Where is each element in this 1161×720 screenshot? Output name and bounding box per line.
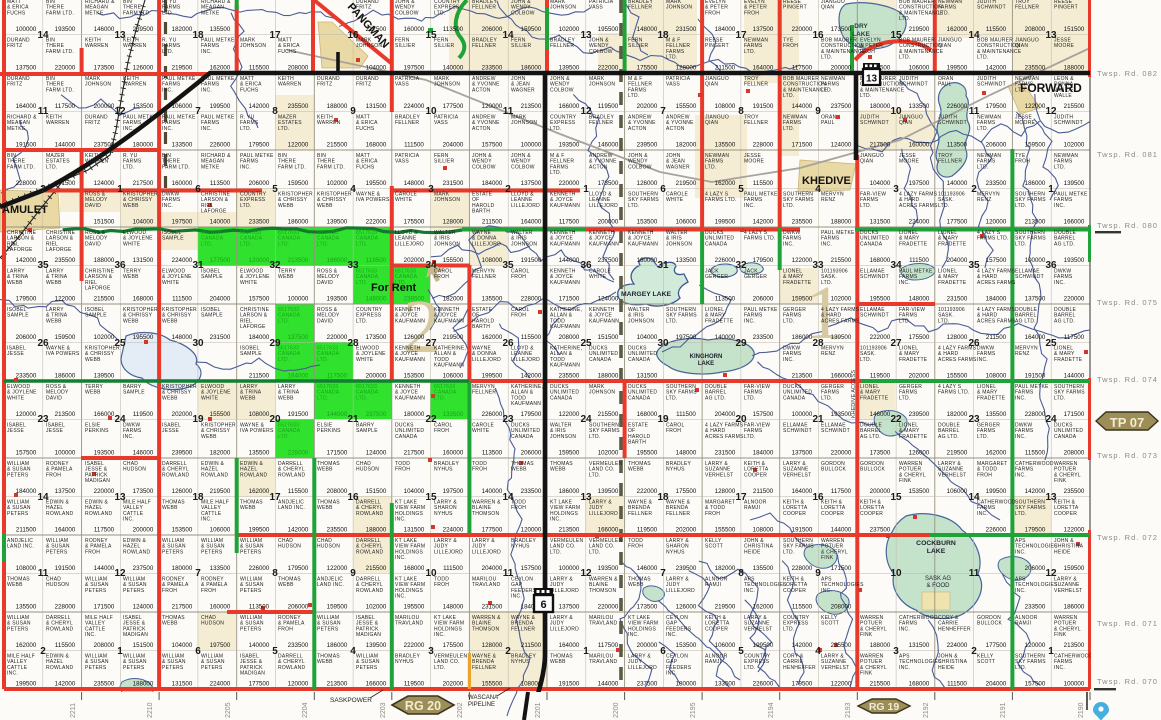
svg-text:193500: 193500 bbox=[598, 565, 619, 572]
svg-text:191500: 191500 bbox=[521, 257, 542, 264]
svg-text:237500: 237500 bbox=[366, 411, 387, 418]
svg-text:115500: 115500 bbox=[288, 488, 309, 495]
svg-text:191500: 191500 bbox=[1025, 373, 1046, 380]
svg-text:188000: 188000 bbox=[598, 373, 619, 380]
svg-text:DOUBLEBARRELAG LTD.: DOUBLEBARRELAG LTD. bbox=[860, 423, 882, 440]
svg-text:ANDJELICLAND INC.: ANDJELICLAND INC. bbox=[278, 500, 305, 512]
svg-text:179500: 179500 bbox=[792, 681, 813, 688]
svg-text:2194: 2194 bbox=[768, 702, 775, 718]
svg-text:100000: 100000 bbox=[1025, 257, 1046, 264]
svg-text:120000: 120000 bbox=[288, 681, 309, 688]
svg-text:CHRISTINELARSON &RIELLAFORGE: CHRISTINELARSON &RIELLAFORGE bbox=[240, 307, 270, 330]
svg-text:204000: 204000 bbox=[947, 257, 968, 264]
svg-text:206000: 206000 bbox=[482, 26, 503, 33]
svg-text:133500: 133500 bbox=[676, 257, 697, 264]
svg-text:217500: 217500 bbox=[404, 450, 425, 457]
svg-text:208000: 208000 bbox=[94, 642, 115, 649]
svg-text:153500: 153500 bbox=[909, 488, 930, 495]
svg-text:126000: 126000 bbox=[172, 488, 193, 495]
svg-text:KEITH &LORETTACOOPER: KEITH &LORETTACOOPER bbox=[783, 500, 808, 517]
svg-text:CHRISTINELARSON &RIELLAFORGE: CHRISTINELARSON &RIELLAFORGE bbox=[201, 192, 231, 215]
svg-text:146000: 146000 bbox=[366, 296, 387, 303]
svg-text:WASCANA: WASCANA bbox=[468, 695, 498, 701]
svg-text:140000: 140000 bbox=[482, 488, 503, 495]
svg-text:135500: 135500 bbox=[482, 296, 503, 303]
svg-text:LAKE: LAKE bbox=[927, 548, 946, 555]
svg-text:211500: 211500 bbox=[715, 65, 736, 72]
svg-text:139500: 139500 bbox=[559, 65, 580, 72]
svg-text:186000: 186000 bbox=[559, 488, 580, 495]
svg-text:TODDFROH: TODDFROH bbox=[511, 500, 526, 512]
svg-text:ELLAMAESCHWINDT: ELLAMAESCHWINDT bbox=[860, 307, 889, 319]
svg-text:215500: 215500 bbox=[94, 296, 115, 303]
svg-text:DOUBLEBARRELAG LTD.: DOUBLEBARRELAG LTD. bbox=[1015, 307, 1037, 324]
svg-text:144000: 144000 bbox=[559, 257, 580, 264]
svg-text:ISABELJESSE: ISABELJESSE bbox=[162, 423, 181, 435]
svg-text:233500: 233500 bbox=[1025, 604, 1046, 611]
svg-text:119500: 119500 bbox=[870, 373, 891, 380]
svg-text:104000: 104000 bbox=[404, 488, 425, 495]
svg-text:LAKE: LAKE bbox=[852, 31, 870, 38]
svg-text:151500: 151500 bbox=[598, 334, 619, 341]
svg-text:ANDJELICLAND INC.: ANDJELICLAND INC. bbox=[7, 538, 34, 550]
svg-text:180000: 180000 bbox=[404, 411, 425, 418]
svg-text:126000: 126000 bbox=[676, 604, 697, 611]
svg-text:131500: 131500 bbox=[366, 103, 387, 110]
svg-text:119500: 119500 bbox=[366, 257, 387, 264]
svg-text:ISABELJESSE: ISABELJESSE bbox=[7, 346, 26, 358]
svg-text:228000: 228000 bbox=[288, 450, 309, 457]
svg-text:175500: 175500 bbox=[404, 219, 425, 226]
svg-text:108000: 108000 bbox=[715, 103, 736, 110]
svg-text:159500: 159500 bbox=[1064, 565, 1085, 572]
svg-text:131500: 131500 bbox=[870, 219, 891, 226]
svg-text:137500: 137500 bbox=[288, 334, 309, 341]
svg-text:113500: 113500 bbox=[443, 26, 464, 33]
svg-text:179500: 179500 bbox=[521, 411, 542, 418]
svg-text:DARRELL& CHERYLROWLAND: DARRELL& CHERYLROWLAND bbox=[278, 654, 305, 671]
svg-text:140000: 140000 bbox=[947, 180, 968, 187]
svg-text:186000: 186000 bbox=[1064, 604, 1085, 611]
svg-text:235500: 235500 bbox=[559, 373, 580, 380]
svg-text:KELLYSCOTT: KELLYSCOTT bbox=[821, 615, 839, 627]
svg-text:171500: 171500 bbox=[327, 450, 348, 457]
svg-text:168000: 168000 bbox=[637, 411, 658, 418]
svg-text:224000: 224000 bbox=[909, 219, 930, 226]
svg-text:202000: 202000 bbox=[443, 681, 464, 688]
svg-text:RG 20: RG 20 bbox=[405, 699, 441, 713]
svg-text:WAYNE &BRENDAFELLNER: WAYNE &BRENDAFELLNER bbox=[472, 654, 497, 671]
svg-text:104000: 104000 bbox=[133, 219, 154, 226]
svg-text:CHRISTINELARSON &RIELLAFORGE: CHRISTINELARSON &RIELLAFORGE bbox=[7, 230, 37, 253]
svg-text:184000: 184000 bbox=[249, 334, 270, 341]
svg-text:226000: 226000 bbox=[482, 411, 503, 418]
svg-text:RG 19: RG 19 bbox=[869, 701, 900, 713]
svg-text:213500: 213500 bbox=[559, 527, 580, 534]
svg-text:213500: 213500 bbox=[1064, 642, 1085, 649]
svg-text:220000: 220000 bbox=[792, 26, 813, 33]
svg-text:166000: 166000 bbox=[366, 681, 387, 688]
svg-text:157500: 157500 bbox=[482, 142, 503, 149]
svg-text:131500: 131500 bbox=[404, 527, 425, 534]
svg-text:235500: 235500 bbox=[288, 103, 309, 110]
svg-text:157500: 157500 bbox=[986, 257, 1007, 264]
svg-text:195500: 195500 bbox=[598, 26, 619, 33]
svg-text:CHRISTINELARSON &RIELLAFORGE: CHRISTINELARSON &RIELLAFORGE bbox=[85, 269, 115, 292]
svg-text:Twsp. Rd. 071: Twsp. Rd. 071 bbox=[1097, 619, 1158, 628]
svg-text:142000: 142000 bbox=[792, 642, 813, 649]
svg-text:200000: 200000 bbox=[94, 103, 115, 110]
svg-text:WILLIAM& SUSANPETERS: WILLIAM& SUSANPETERS bbox=[317, 615, 341, 632]
svg-text:186000: 186000 bbox=[55, 373, 76, 380]
svg-text:155500: 155500 bbox=[715, 527, 736, 534]
svg-text:195500: 195500 bbox=[637, 450, 658, 457]
svg-text:113500: 113500 bbox=[249, 604, 270, 611]
svg-text:160000: 160000 bbox=[210, 604, 231, 611]
svg-text:171500: 171500 bbox=[559, 296, 580, 303]
svg-text:KINGHORN: KINGHORN bbox=[690, 354, 723, 360]
svg-text:WILLIAM& SUSANPETERS: WILLIAM& SUSANPETERS bbox=[162, 654, 186, 671]
svg-text:30: 30 bbox=[657, 338, 669, 349]
svg-text:179500: 179500 bbox=[1025, 527, 1046, 534]
svg-text:160000: 160000 bbox=[172, 180, 193, 187]
svg-text:188000: 188000 bbox=[831, 219, 852, 226]
svg-text:DARRELL& CHERYLROWLAND: DARRELL& CHERYLROWLAND bbox=[162, 461, 189, 478]
svg-text:164000: 164000 bbox=[559, 642, 580, 649]
svg-text:100000: 100000 bbox=[792, 411, 813, 418]
svg-text:186000: 186000 bbox=[521, 65, 542, 72]
svg-text:199500: 199500 bbox=[715, 219, 736, 226]
svg-text:211500: 211500 bbox=[986, 334, 1007, 341]
svg-text:KEITH &LORETTACOOPER: KEITH &LORETTACOOPER bbox=[783, 577, 808, 594]
svg-text:122000: 122000 bbox=[1064, 527, 1085, 534]
svg-text:137500: 137500 bbox=[55, 488, 76, 495]
svg-text:202000: 202000 bbox=[637, 103, 658, 110]
svg-text:213500: 213500 bbox=[521, 103, 542, 110]
svg-text:140000: 140000 bbox=[715, 334, 736, 341]
svg-text:135500: 135500 bbox=[210, 26, 231, 33]
svg-text:217500: 217500 bbox=[870, 142, 891, 149]
svg-text:173500: 173500 bbox=[637, 604, 658, 611]
svg-text:204000: 204000 bbox=[986, 681, 1007, 688]
svg-text:WILLIAM& SUSANPETERS: WILLIAM& SUSANPETERS bbox=[7, 461, 31, 478]
svg-text:128000: 128000 bbox=[715, 488, 736, 495]
svg-text:29: 29 bbox=[735, 338, 747, 349]
svg-text:162000: 162000 bbox=[210, 65, 231, 72]
svg-text:186000: 186000 bbox=[1025, 180, 1046, 187]
svg-text:200000: 200000 bbox=[637, 642, 658, 649]
svg-text:MARILOUTRAVLAND: MARILOUTRAVLAND bbox=[472, 577, 500, 589]
svg-text:WILLIAM& SUSANPETERS: WILLIAM& SUSANPETERS bbox=[201, 538, 225, 555]
svg-text:137500: 137500 bbox=[521, 180, 542, 187]
svg-text:186000: 186000 bbox=[288, 219, 309, 226]
svg-text:131500: 131500 bbox=[637, 373, 658, 380]
svg-text:202000: 202000 bbox=[909, 373, 930, 380]
svg-text:MARILOUTRAVLAND: MARILOUTRAVLAND bbox=[395, 615, 423, 627]
svg-text:162000: 162000 bbox=[715, 180, 736, 187]
svg-text:166000: 166000 bbox=[831, 373, 852, 380]
svg-text:237500: 237500 bbox=[598, 257, 619, 264]
svg-text:KELLYSCOTT: KELLYSCOTT bbox=[705, 538, 723, 550]
svg-text:191500: 191500 bbox=[16, 142, 37, 149]
svg-text:220000: 220000 bbox=[1064, 296, 1085, 303]
svg-text:235500: 235500 bbox=[1025, 65, 1046, 72]
svg-text:146000: 146000 bbox=[94, 26, 115, 33]
svg-text:153500: 153500 bbox=[172, 527, 193, 534]
svg-text:BRADLEYFELLNER: BRADLEYFELLNER bbox=[395, 115, 421, 127]
svg-text:199500: 199500 bbox=[482, 373, 503, 380]
svg-text:148000: 148000 bbox=[404, 180, 425, 187]
svg-text:120000: 120000 bbox=[16, 411, 37, 418]
svg-text:10: 10 bbox=[890, 568, 902, 579]
svg-text:CHRISTINELARSON &RIELLAFORGE: CHRISTINELARSON &RIELLAFORGE bbox=[46, 230, 76, 253]
svg-text:115500: 115500 bbox=[249, 65, 270, 72]
svg-text:102000: 102000 bbox=[559, 26, 580, 33]
svg-text:144000: 144000 bbox=[1064, 373, 1085, 380]
svg-text:TP 07: TP 07 bbox=[1110, 415, 1144, 430]
svg-text:206000: 206000 bbox=[249, 180, 270, 187]
svg-text:142000: 142000 bbox=[16, 257, 37, 264]
svg-text:159500: 159500 bbox=[792, 296, 813, 303]
svg-text:DARRELL& CHERYLROWLAND: DARRELL& CHERYLROWLAND bbox=[356, 577, 383, 594]
svg-text:122000: 122000 bbox=[327, 565, 348, 572]
svg-text:115500: 115500 bbox=[792, 604, 813, 611]
svg-text:193500: 193500 bbox=[94, 450, 115, 457]
svg-text:119500: 119500 bbox=[133, 411, 154, 418]
svg-text:219500: 219500 bbox=[947, 450, 968, 457]
svg-text:KEITH &LORETTACOOPER: KEITH &LORETTACOOPER bbox=[744, 461, 769, 478]
svg-text:120000: 120000 bbox=[1025, 642, 1046, 649]
svg-text:197500: 197500 bbox=[404, 65, 425, 72]
svg-text:ISABELJESSE: ISABELJESSE bbox=[46, 423, 65, 435]
svg-text:222000: 222000 bbox=[366, 219, 387, 226]
svg-text:DARRELL& CHERYLROWLAND: DARRELL& CHERYLROWLAND bbox=[356, 538, 383, 555]
svg-text:WILLIAM& SUSANPETERS: WILLIAM& SUSANPETERS bbox=[123, 577, 147, 594]
svg-text:193500: 193500 bbox=[831, 411, 852, 418]
svg-text:235500: 235500 bbox=[55, 257, 76, 264]
svg-text:228000: 228000 bbox=[753, 142, 774, 149]
svg-text:199500: 199500 bbox=[210, 103, 231, 110]
svg-text:239500: 239500 bbox=[404, 296, 425, 303]
svg-text:137500: 137500 bbox=[559, 604, 580, 611]
svg-text:139500: 139500 bbox=[1064, 180, 1085, 187]
svg-text:224000: 224000 bbox=[404, 103, 425, 110]
svg-text:219500: 219500 bbox=[172, 65, 193, 72]
svg-text:231500: 231500 bbox=[443, 180, 464, 187]
svg-text:AMULET: AMULET bbox=[2, 204, 48, 216]
svg-text:146000: 146000 bbox=[637, 565, 658, 572]
svg-text:237500: 237500 bbox=[94, 142, 115, 149]
svg-text:188000: 188000 bbox=[870, 642, 891, 649]
svg-text:199500: 199500 bbox=[986, 488, 1007, 495]
svg-text:144000: 144000 bbox=[831, 527, 852, 534]
svg-text:2200: 2200 bbox=[613, 702, 620, 718]
svg-text:137500: 137500 bbox=[16, 65, 37, 72]
svg-text:200000: 200000 bbox=[366, 373, 387, 380]
svg-text:153500: 153500 bbox=[676, 642, 697, 649]
svg-text:159500: 159500 bbox=[327, 604, 348, 611]
svg-text:217500: 217500 bbox=[172, 604, 193, 611]
svg-text:202000: 202000 bbox=[172, 411, 193, 418]
svg-text:GORDONBULLOCK: GORDONBULLOCK bbox=[821, 461, 847, 473]
svg-text:WAYNE &BRENDAFELLNER: WAYNE &BRENDAFELLNER bbox=[628, 500, 653, 517]
svg-text:166000: 166000 bbox=[559, 103, 580, 110]
svg-text:228000: 228000 bbox=[521, 296, 542, 303]
svg-text:BRADLEYFELLNER: BRADLEYFELLNER bbox=[472, 0, 498, 11]
svg-text:100000: 100000 bbox=[288, 296, 309, 303]
svg-text:219500: 219500 bbox=[909, 26, 930, 33]
svg-text:155500: 155500 bbox=[210, 411, 231, 418]
svg-text:102000: 102000 bbox=[366, 604, 387, 611]
svg-text:ORANPAUL: ORANPAUL bbox=[821, 115, 837, 127]
svg-text:237500: 237500 bbox=[870, 527, 891, 534]
svg-text:WAYNE &BRENDAFELLNER: WAYNE &BRENDAFELLNER bbox=[511, 615, 536, 632]
svg-text:179500: 179500 bbox=[753, 257, 774, 264]
svg-text:KELLYSCOTT: KELLYSCOTT bbox=[977, 654, 995, 666]
svg-text:ELLAMAESCHWINDT: ELLAMAESCHWINDT bbox=[1015, 269, 1044, 281]
svg-text:148000: 148000 bbox=[172, 334, 193, 341]
svg-text:157500: 157500 bbox=[16, 450, 37, 457]
svg-text:139500: 139500 bbox=[831, 334, 852, 341]
svg-text:206000: 206000 bbox=[986, 142, 1007, 149]
svg-text:179500: 179500 bbox=[16, 296, 37, 303]
svg-text:WILLIAM& SUSANPETERS: WILLIAM& SUSANPETERS bbox=[201, 654, 225, 671]
svg-text:155500: 155500 bbox=[676, 103, 697, 110]
svg-text:224000: 224000 bbox=[172, 257, 193, 264]
svg-text:108000: 108000 bbox=[482, 257, 503, 264]
svg-text:151500: 151500 bbox=[1064, 26, 1085, 33]
svg-text:202000: 202000 bbox=[676, 527, 697, 534]
svg-text:117500: 117500 bbox=[559, 219, 580, 226]
svg-text:220000: 220000 bbox=[559, 180, 580, 187]
svg-text:135500: 135500 bbox=[753, 565, 774, 572]
svg-text:137500: 137500 bbox=[753, 26, 774, 33]
svg-text:188000: 188000 bbox=[327, 103, 348, 110]
svg-text:102000: 102000 bbox=[598, 450, 619, 457]
svg-text:102000: 102000 bbox=[831, 296, 852, 303]
svg-text:124000: 124000 bbox=[133, 604, 154, 611]
svg-text:168000: 168000 bbox=[366, 142, 387, 149]
svg-text:182000: 182000 bbox=[210, 450, 231, 457]
svg-text:151500: 151500 bbox=[133, 642, 154, 649]
svg-text:160000: 160000 bbox=[909, 142, 930, 149]
svg-text:WILLIAM& SUSANPETERS: WILLIAM& SUSANPETERS bbox=[240, 538, 264, 555]
svg-text:208000: 208000 bbox=[559, 334, 580, 341]
svg-text:180000: 180000 bbox=[133, 142, 154, 149]
svg-text:222000: 222000 bbox=[404, 642, 425, 649]
svg-text:171500: 171500 bbox=[1064, 411, 1085, 418]
svg-text:211500: 211500 bbox=[16, 527, 37, 534]
svg-text:124000: 124000 bbox=[831, 142, 852, 149]
svg-text:104000: 104000 bbox=[870, 180, 891, 187]
svg-text:142000: 142000 bbox=[986, 65, 1007, 72]
svg-text:ELLAMAESCHWINDT: ELLAMAESCHWINDT bbox=[821, 423, 850, 435]
svg-text:164000: 164000 bbox=[16, 103, 37, 110]
svg-text:211500: 211500 bbox=[753, 488, 774, 495]
svg-text:215500: 215500 bbox=[870, 681, 891, 688]
svg-text:226000: 226000 bbox=[753, 681, 774, 688]
svg-text:SASKPOWER: SASKPOWER bbox=[330, 697, 372, 704]
svg-text:162000: 162000 bbox=[986, 450, 1007, 457]
svg-text:WILLIAM& SUSANPETERS: WILLIAM& SUSANPETERS bbox=[46, 538, 70, 555]
svg-text:108000: 108000 bbox=[249, 411, 270, 418]
svg-text:122000: 122000 bbox=[792, 257, 813, 264]
svg-text:188000: 188000 bbox=[1064, 65, 1085, 72]
svg-text:131500: 131500 bbox=[172, 681, 193, 688]
svg-text:WILLIAM& SUSANPETERS: WILLIAM& SUSANPETERS bbox=[240, 615, 264, 632]
svg-text:159500: 159500 bbox=[559, 450, 580, 457]
svg-text:162000: 162000 bbox=[947, 26, 968, 33]
svg-text:206000: 206000 bbox=[521, 450, 542, 457]
svg-text:235500: 235500 bbox=[1064, 488, 1085, 495]
svg-text:231500: 231500 bbox=[482, 604, 503, 611]
svg-text:DARRELL& CHERYLROWLAND: DARRELL& CHERYLROWLAND bbox=[278, 461, 305, 478]
svg-text:ISOBELSAMPLE: ISOBELSAMPLE bbox=[7, 307, 29, 319]
svg-text:Twsp. Rd. 070: Twsp. Rd. 070 bbox=[1097, 677, 1158, 686]
svg-text:206000: 206000 bbox=[16, 334, 37, 341]
svg-text:148000: 148000 bbox=[443, 604, 464, 611]
svg-text:KEITH &LORETTACOOPER: KEITH &LORETTACOOPER bbox=[1054, 500, 1079, 517]
svg-text:WAYNE &BRENDAFELLNER: WAYNE &BRENDAFELLNER bbox=[666, 500, 691, 517]
svg-text:148000: 148000 bbox=[637, 26, 658, 33]
svg-text:113500: 113500 bbox=[947, 142, 968, 149]
svg-text:135500: 135500 bbox=[986, 411, 1007, 418]
svg-text:GORDONBULLOCK: GORDONBULLOCK bbox=[977, 615, 1003, 627]
svg-text:TODDFROH: TODDFROH bbox=[395, 461, 410, 473]
svg-text:177500: 177500 bbox=[986, 642, 1007, 649]
svg-text:237500: 237500 bbox=[133, 565, 154, 572]
svg-text:171500: 171500 bbox=[831, 565, 852, 572]
svg-text:KHEDIVE ACCESS: KHEDIVE ACCESS bbox=[851, 370, 857, 418]
svg-text:173500: 173500 bbox=[366, 334, 387, 341]
svg-text:200000: 200000 bbox=[133, 527, 154, 534]
svg-text:WILLIAM& SUSANPETERS: WILLIAM& SUSANPETERS bbox=[7, 500, 31, 517]
svg-text:11: 11 bbox=[969, 568, 980, 579]
svg-text:2192: 2192 bbox=[923, 702, 930, 718]
svg-text:142000: 142000 bbox=[288, 527, 309, 534]
svg-text:142000: 142000 bbox=[249, 103, 270, 110]
svg-text:164000: 164000 bbox=[55, 527, 76, 534]
svg-text:191500: 191500 bbox=[559, 681, 580, 688]
svg-text:113500: 113500 bbox=[482, 450, 503, 457]
svg-text:226000: 226000 bbox=[249, 565, 270, 572]
svg-text:219500: 219500 bbox=[715, 604, 736, 611]
svg-text:ISOBELSAMPLE: ISOBELSAMPLE bbox=[201, 307, 223, 319]
svg-text:100000: 100000 bbox=[1064, 681, 1085, 688]
svg-text:199500: 199500 bbox=[753, 642, 774, 649]
svg-text:2193: 2193 bbox=[845, 702, 852, 718]
svg-text:111500: 111500 bbox=[947, 681, 967, 688]
svg-text:ISOBELSAMPLE: ISOBELSAMPLE bbox=[162, 230, 184, 242]
svg-text:142000: 142000 bbox=[521, 373, 542, 380]
svg-text:184000: 184000 bbox=[16, 488, 37, 495]
svg-text:DRY: DRY bbox=[854, 23, 868, 30]
svg-text:Twsp. Rd. 082: Twsp. Rd. 082 bbox=[1097, 69, 1158, 78]
svg-text:119500: 119500 bbox=[637, 527, 658, 534]
svg-text:159500: 159500 bbox=[55, 334, 76, 341]
svg-text:122000: 122000 bbox=[831, 681, 852, 688]
svg-text:233500: 233500 bbox=[16, 373, 37, 380]
svg-text:115500: 115500 bbox=[753, 180, 774, 187]
svg-text:122000: 122000 bbox=[559, 411, 580, 418]
svg-text:153500: 153500 bbox=[404, 373, 425, 380]
svg-text:208000: 208000 bbox=[831, 604, 852, 611]
svg-text:239500: 239500 bbox=[676, 565, 697, 572]
svg-text:213500: 213500 bbox=[55, 411, 76, 418]
svg-text:144000: 144000 bbox=[55, 142, 76, 149]
svg-text:148000: 148000 bbox=[676, 450, 697, 457]
svg-text:237500: 237500 bbox=[637, 681, 658, 688]
